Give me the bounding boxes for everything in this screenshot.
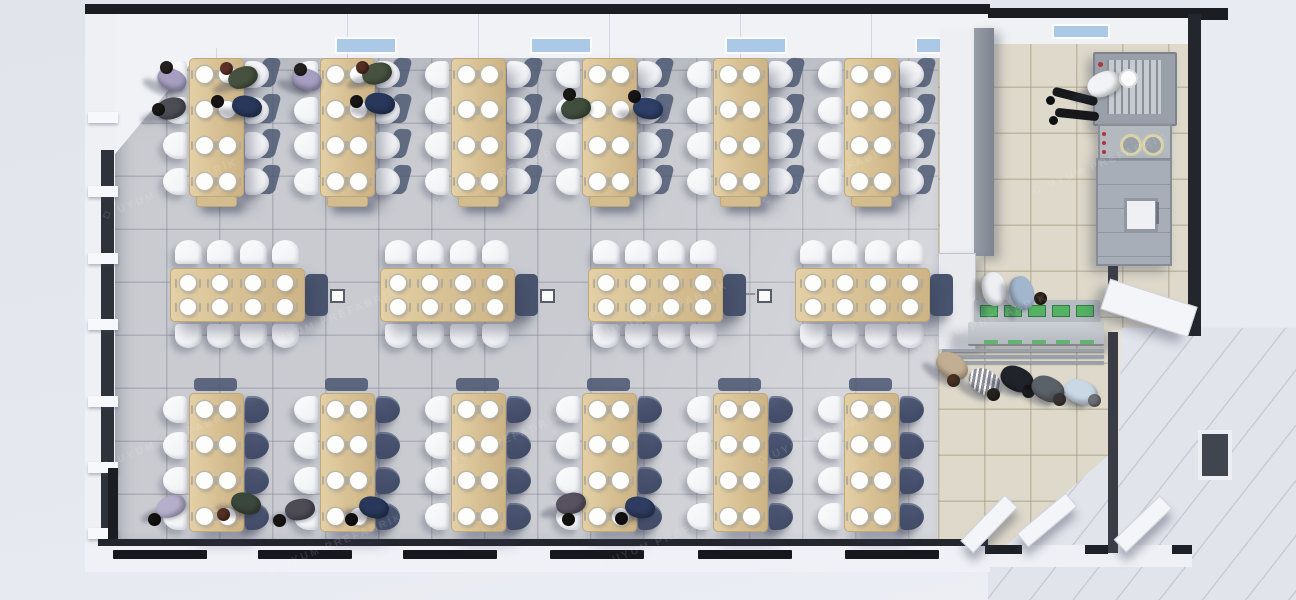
fork-icon bbox=[322, 106, 324, 115]
fork-icon bbox=[191, 405, 193, 414]
floor-power-box-2 bbox=[757, 289, 772, 303]
fork-icon bbox=[476, 141, 478, 150]
plate bbox=[589, 137, 606, 154]
plate bbox=[902, 275, 918, 291]
fork-icon bbox=[322, 177, 324, 186]
fork-icon bbox=[869, 141, 871, 150]
plate bbox=[458, 137, 475, 154]
fork-icon bbox=[476, 177, 478, 186]
fork-icon bbox=[738, 70, 740, 79]
fork-icon bbox=[846, 177, 848, 186]
chair bbox=[425, 61, 449, 88]
fork-icon bbox=[869, 70, 871, 79]
plate bbox=[851, 101, 868, 118]
fork-icon bbox=[385, 303, 387, 312]
plate bbox=[743, 472, 760, 489]
plate bbox=[327, 436, 344, 453]
chair bbox=[556, 61, 580, 88]
end-seat-navy bbox=[723, 274, 746, 316]
knife-icon bbox=[617, 303, 619, 312]
knife-icon bbox=[501, 441, 503, 450]
plate bbox=[851, 436, 868, 453]
fork-icon bbox=[584, 476, 586, 485]
knife-icon bbox=[740, 70, 742, 79]
person-head bbox=[562, 513, 575, 526]
fork-icon bbox=[690, 303, 692, 312]
knife-icon bbox=[871, 177, 873, 186]
fork-icon bbox=[345, 141, 347, 150]
knife-icon bbox=[370, 476, 372, 485]
plate bbox=[612, 436, 629, 453]
fork-icon bbox=[191, 441, 193, 450]
plate bbox=[458, 508, 475, 525]
fork-icon bbox=[607, 106, 609, 115]
plate bbox=[612, 137, 629, 154]
knife-icon bbox=[609, 106, 611, 115]
plate bbox=[390, 299, 406, 315]
end-seat-navy bbox=[305, 274, 328, 316]
knife-icon bbox=[609, 405, 611, 414]
fork-icon bbox=[715, 141, 717, 150]
knife-icon bbox=[894, 512, 896, 521]
knife-icon bbox=[632, 70, 634, 79]
bottom-window-3 bbox=[550, 550, 644, 559]
plate bbox=[743, 436, 760, 453]
knife-icon bbox=[824, 279, 826, 288]
plate bbox=[851, 472, 868, 489]
chair bbox=[207, 240, 234, 264]
food-tray-green bbox=[1076, 305, 1094, 317]
fork-icon bbox=[453, 441, 455, 450]
fork-icon bbox=[345, 441, 347, 450]
bottom-window-1 bbox=[258, 550, 352, 559]
plate bbox=[720, 137, 737, 154]
partition-face-white bbox=[940, 28, 974, 278]
knife-icon bbox=[370, 405, 372, 414]
plate bbox=[458, 472, 475, 489]
plate bbox=[196, 401, 213, 418]
head-bench bbox=[196, 196, 237, 207]
right-outer-wall bbox=[1188, 14, 1201, 336]
plate bbox=[598, 275, 614, 291]
fork-icon bbox=[607, 441, 609, 450]
plate bbox=[390, 275, 406, 291]
chair bbox=[294, 396, 318, 423]
knife-icon bbox=[474, 279, 476, 288]
plate bbox=[851, 66, 868, 83]
knife-icon bbox=[239, 177, 241, 186]
chair bbox=[482, 240, 509, 264]
head-bench bbox=[720, 196, 761, 207]
knife-icon bbox=[478, 405, 480, 414]
chair bbox=[818, 97, 842, 124]
plate bbox=[589, 66, 606, 83]
knife-icon bbox=[921, 303, 923, 312]
fork-icon bbox=[584, 441, 586, 450]
fork-icon bbox=[476, 106, 478, 115]
top-window-2 bbox=[725, 37, 787, 54]
chair bbox=[425, 503, 449, 530]
chef-shoe bbox=[1046, 96, 1055, 105]
fork-icon bbox=[869, 441, 871, 450]
plate bbox=[743, 173, 760, 190]
plate bbox=[245, 299, 261, 315]
plate bbox=[874, 173, 891, 190]
plate bbox=[720, 508, 737, 525]
bottom-wall-line bbox=[98, 539, 988, 546]
knife-icon bbox=[763, 405, 765, 414]
fork-icon bbox=[240, 279, 242, 288]
fork-icon bbox=[715, 70, 717, 79]
head-bench bbox=[327, 196, 368, 207]
left-window-sill-2 bbox=[88, 253, 118, 264]
knife-icon bbox=[501, 512, 503, 521]
fork-icon bbox=[272, 279, 274, 288]
chair bbox=[556, 432, 580, 459]
floor-power-box-0 bbox=[330, 289, 345, 303]
plate bbox=[219, 137, 236, 154]
plate bbox=[327, 66, 344, 83]
partition-top bbox=[974, 28, 994, 256]
knife-icon bbox=[871, 405, 873, 414]
right-wing-exterior-wall bbox=[1200, 0, 1296, 345]
chair bbox=[240, 240, 267, 264]
chair bbox=[482, 324, 509, 348]
plate bbox=[219, 436, 236, 453]
knife-icon bbox=[871, 106, 873, 115]
chair bbox=[690, 324, 717, 348]
knife-icon bbox=[763, 512, 765, 521]
knife-icon bbox=[216, 70, 218, 79]
plate bbox=[663, 299, 679, 315]
fork-icon bbox=[345, 106, 347, 115]
fork-icon bbox=[865, 279, 867, 288]
plate bbox=[589, 508, 606, 525]
head-seat-shadow bbox=[194, 378, 237, 391]
tray-edge-green bbox=[1080, 340, 1094, 344]
fork-icon bbox=[715, 476, 717, 485]
knife-icon bbox=[763, 476, 765, 485]
plate bbox=[487, 299, 503, 315]
knife-icon bbox=[871, 512, 873, 521]
knife-icon bbox=[478, 177, 480, 186]
knife-icon bbox=[763, 106, 765, 115]
person-head bbox=[345, 513, 358, 526]
left-window-sill-4 bbox=[88, 396, 118, 407]
fork-icon bbox=[738, 476, 740, 485]
fork-icon bbox=[738, 177, 740, 186]
fork-icon bbox=[214, 476, 216, 485]
plate bbox=[245, 275, 261, 291]
fork-icon bbox=[607, 476, 609, 485]
chair bbox=[800, 324, 827, 348]
fork-icon bbox=[191, 177, 193, 186]
burner bbox=[1120, 134, 1142, 156]
fork-icon bbox=[846, 141, 848, 150]
knife-icon bbox=[501, 476, 503, 485]
plate bbox=[458, 66, 475, 83]
tray-edge-green bbox=[1008, 340, 1022, 344]
fork-icon bbox=[584, 405, 586, 414]
knife-icon bbox=[714, 303, 716, 312]
fork-icon bbox=[191, 512, 193, 521]
fork-icon bbox=[175, 303, 177, 312]
fork-icon bbox=[191, 106, 193, 115]
person-head bbox=[615, 512, 628, 525]
knife-icon bbox=[889, 279, 891, 288]
head-seat-shadow bbox=[849, 378, 892, 391]
plate bbox=[589, 173, 606, 190]
floor-power-box-1 bbox=[540, 289, 555, 303]
person-head bbox=[563, 88, 576, 101]
fork-icon bbox=[450, 279, 452, 288]
plate bbox=[743, 401, 760, 418]
fork-icon bbox=[593, 303, 595, 312]
knife-icon bbox=[609, 441, 611, 450]
person-head bbox=[148, 513, 161, 526]
plate bbox=[851, 401, 868, 418]
vestibule-window bbox=[1198, 430, 1232, 480]
knife-icon bbox=[740, 405, 742, 414]
chair bbox=[818, 168, 842, 195]
fork-icon bbox=[191, 476, 193, 485]
knife-icon bbox=[763, 177, 765, 186]
tray-edge-green bbox=[1056, 340, 1070, 344]
plate bbox=[487, 275, 503, 291]
plate bbox=[196, 436, 213, 453]
plate bbox=[219, 401, 236, 418]
fork-icon bbox=[658, 279, 660, 288]
cooktop-range bbox=[1098, 124, 1172, 162]
fork-icon bbox=[482, 279, 484, 288]
fork-icon bbox=[214, 405, 216, 414]
plate bbox=[481, 66, 498, 83]
person-head bbox=[220, 62, 233, 75]
knife-icon bbox=[239, 441, 241, 450]
chair bbox=[175, 240, 202, 264]
head-bench bbox=[851, 196, 892, 207]
fork-icon bbox=[738, 141, 740, 150]
plate bbox=[720, 401, 737, 418]
knife-icon bbox=[889, 303, 891, 312]
head-seat-shadow bbox=[718, 378, 761, 391]
fork-icon bbox=[846, 476, 848, 485]
fork-icon bbox=[345, 405, 347, 414]
knife-icon bbox=[216, 441, 218, 450]
plate bbox=[851, 137, 868, 154]
knife-icon bbox=[871, 441, 873, 450]
knife-icon bbox=[763, 441, 765, 450]
knife-icon bbox=[501, 70, 503, 79]
knife-icon bbox=[239, 476, 241, 485]
knife-icon bbox=[216, 476, 218, 485]
knife-icon bbox=[894, 177, 896, 186]
knife-icon bbox=[409, 303, 411, 312]
plate bbox=[327, 508, 344, 525]
plate bbox=[874, 137, 891, 154]
chair bbox=[240, 324, 267, 348]
knife-icon bbox=[409, 279, 411, 288]
fork-icon bbox=[658, 303, 660, 312]
plate bbox=[481, 173, 498, 190]
plate bbox=[874, 401, 891, 418]
fork-icon bbox=[846, 405, 848, 414]
knife-icon bbox=[501, 177, 503, 186]
knife-icon bbox=[609, 70, 611, 79]
fork-icon bbox=[897, 303, 899, 312]
plate bbox=[589, 101, 606, 118]
fork-icon bbox=[453, 512, 455, 521]
knife-icon bbox=[921, 279, 923, 288]
bottom-window-4 bbox=[698, 550, 792, 559]
fork-icon bbox=[846, 441, 848, 450]
chair bbox=[425, 97, 449, 124]
fork-icon bbox=[322, 512, 324, 521]
chair bbox=[163, 432, 187, 459]
knife-icon bbox=[216, 141, 218, 150]
knife-icon bbox=[740, 141, 742, 150]
fork-icon bbox=[846, 512, 848, 521]
fork-icon bbox=[450, 303, 452, 312]
plate bbox=[720, 173, 737, 190]
plate bbox=[743, 101, 760, 118]
plate bbox=[458, 101, 475, 118]
knife-icon bbox=[714, 279, 716, 288]
fork-icon bbox=[584, 70, 586, 79]
plate bbox=[481, 472, 498, 489]
knife-icon bbox=[763, 141, 765, 150]
fork-icon bbox=[322, 70, 324, 79]
fork-icon bbox=[869, 512, 871, 521]
knife-icon bbox=[609, 177, 611, 186]
plate bbox=[458, 173, 475, 190]
chair bbox=[687, 61, 711, 88]
knife-icon bbox=[824, 303, 826, 312]
plate bbox=[277, 299, 293, 315]
person-head bbox=[273, 514, 286, 527]
chair bbox=[818, 61, 842, 88]
chair bbox=[897, 324, 924, 348]
chair bbox=[556, 396, 580, 423]
fork-icon bbox=[593, 279, 595, 288]
plate bbox=[481, 401, 498, 418]
fork-icon bbox=[476, 405, 478, 414]
plate bbox=[481, 101, 498, 118]
knife-icon bbox=[632, 441, 634, 450]
plate bbox=[851, 173, 868, 190]
plate bbox=[805, 275, 821, 291]
knife-icon bbox=[370, 177, 372, 186]
fork-icon bbox=[869, 106, 871, 115]
fork-icon bbox=[453, 106, 455, 115]
knife-icon bbox=[740, 476, 742, 485]
chair bbox=[175, 324, 202, 348]
fork-icon bbox=[715, 441, 717, 450]
knife-icon bbox=[894, 405, 896, 414]
plate bbox=[455, 299, 471, 315]
knife-icon bbox=[478, 106, 480, 115]
fork-icon bbox=[584, 512, 586, 521]
knife-icon bbox=[347, 141, 349, 150]
knife-icon bbox=[632, 177, 634, 186]
tray-edge-green bbox=[1032, 340, 1046, 344]
head-bench bbox=[458, 196, 499, 207]
left-window-sill-1 bbox=[88, 186, 118, 197]
oven-handle bbox=[1156, 202, 1159, 224]
cafeteria-topdown-render: Prefabricated cafeteria dining hall — to… bbox=[0, 0, 1296, 600]
knife-icon bbox=[478, 476, 480, 485]
fork-icon bbox=[607, 405, 609, 414]
knife-icon bbox=[199, 279, 201, 288]
plate bbox=[874, 66, 891, 83]
fork-icon bbox=[214, 141, 216, 150]
end-seat-navy bbox=[930, 274, 953, 316]
person-head bbox=[1034, 292, 1047, 305]
fork-icon bbox=[584, 177, 586, 186]
knife-icon bbox=[501, 141, 503, 150]
chair bbox=[832, 240, 859, 264]
fork-icon bbox=[897, 279, 899, 288]
knife-icon bbox=[370, 441, 372, 450]
fork-icon bbox=[846, 70, 848, 79]
plate bbox=[327, 173, 344, 190]
knife-icon bbox=[347, 476, 349, 485]
person-head bbox=[294, 63, 307, 76]
plate bbox=[743, 137, 760, 154]
fork-icon bbox=[607, 141, 609, 150]
knife-icon bbox=[740, 106, 742, 115]
fork-icon bbox=[214, 70, 216, 79]
knife-icon bbox=[871, 476, 873, 485]
plate bbox=[196, 66, 213, 83]
bottom-left-corner-wall bbox=[108, 468, 118, 550]
plate bbox=[805, 299, 821, 315]
knife-icon bbox=[617, 279, 619, 288]
chair bbox=[450, 240, 477, 264]
fork-icon bbox=[476, 476, 478, 485]
plate bbox=[870, 275, 886, 291]
chair bbox=[687, 432, 711, 459]
plate bbox=[458, 401, 475, 418]
fork-icon bbox=[214, 441, 216, 450]
knife-icon bbox=[632, 141, 634, 150]
plate bbox=[350, 137, 367, 154]
person-head bbox=[160, 61, 173, 74]
fork-icon bbox=[869, 177, 871, 186]
red-knob bbox=[1102, 150, 1106, 154]
plate bbox=[196, 101, 213, 118]
knife-icon bbox=[347, 177, 349, 186]
plate bbox=[458, 436, 475, 453]
knife-icon bbox=[216, 177, 218, 186]
fork-icon bbox=[345, 476, 347, 485]
fork-icon bbox=[865, 303, 867, 312]
chair bbox=[556, 168, 580, 195]
plate bbox=[481, 137, 498, 154]
knife-icon bbox=[501, 405, 503, 414]
plate bbox=[695, 275, 711, 291]
plate bbox=[612, 401, 629, 418]
knife-icon bbox=[370, 141, 372, 150]
plate bbox=[612, 173, 629, 190]
fork-icon bbox=[607, 512, 609, 521]
plate bbox=[219, 472, 236, 489]
plate bbox=[350, 173, 367, 190]
knife-icon bbox=[506, 279, 508, 288]
plate bbox=[743, 508, 760, 525]
knife-icon bbox=[199, 303, 201, 312]
head-seat-shadow bbox=[456, 378, 499, 391]
